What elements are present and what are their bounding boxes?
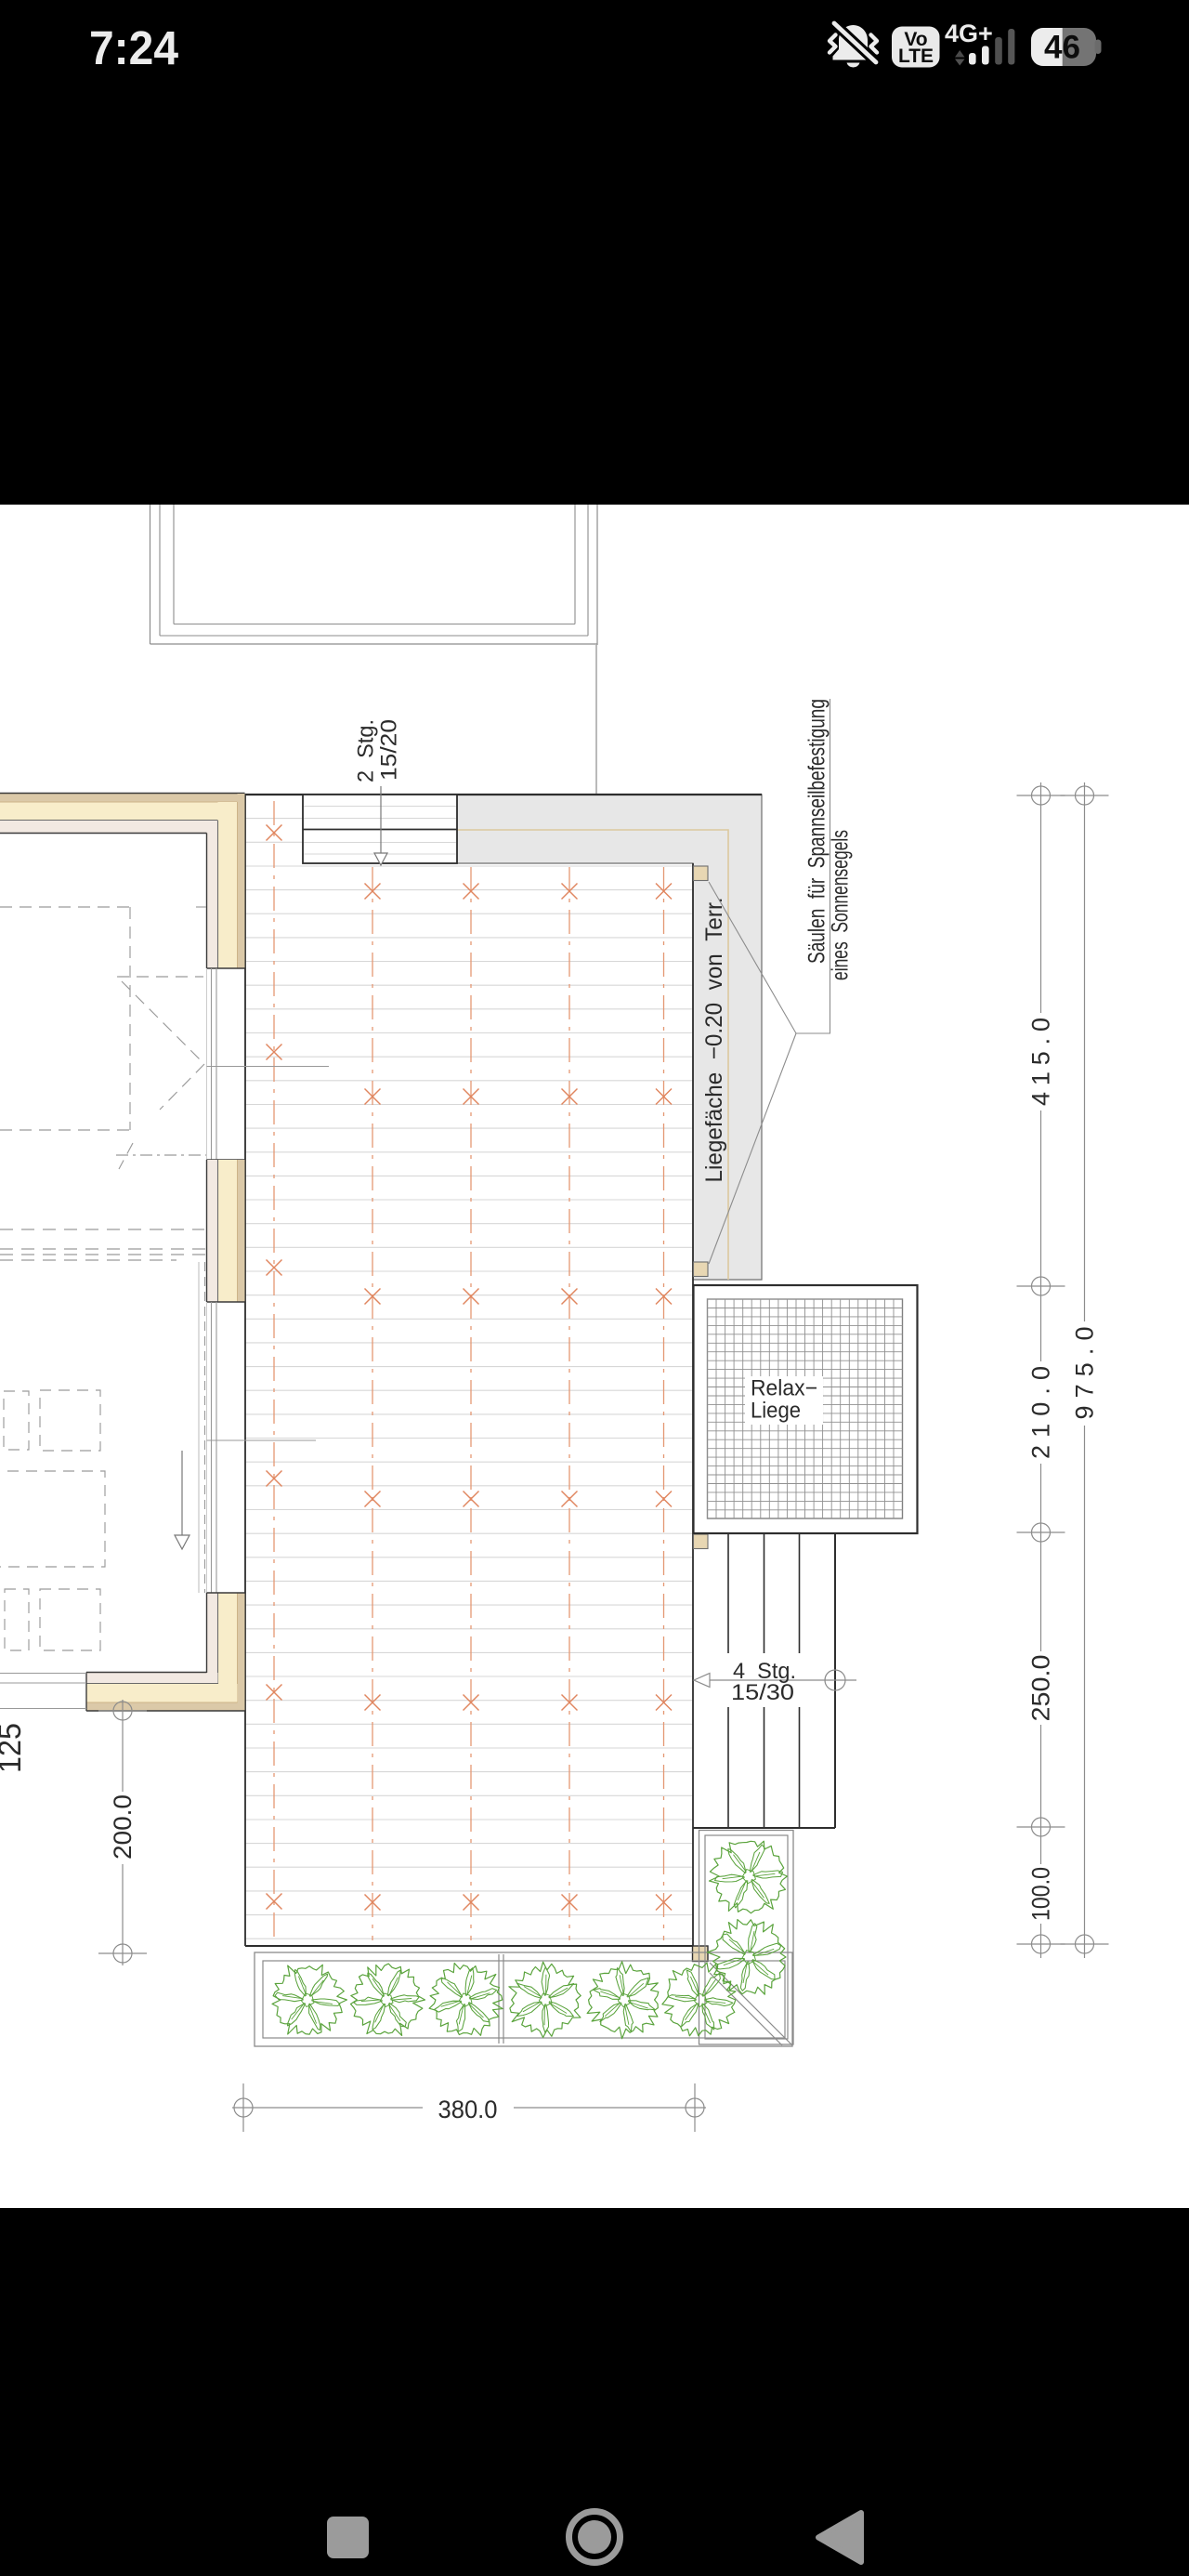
svg-text:15/30: 15/30 — [731, 1680, 794, 1705]
svg-text:975.0: 975.0 — [1071, 1327, 1099, 1420]
svg-text:210.0: 210.0 — [1027, 1366, 1055, 1459]
svg-text:100.0: 100.0 — [1027, 1867, 1055, 1921]
svg-text:Relax−: Relax− — [751, 1376, 817, 1401]
svg-text:Säulen für Spannseilbefestig: Säulen für Spannseilbefestigung — [804, 699, 830, 964]
svg-text:125: 125 — [0, 1723, 28, 1773]
svg-text:415.0: 415.0 — [1027, 1018, 1055, 1106]
svg-text:15/20: 15/20 — [377, 719, 402, 781]
svg-text:380.0: 380.0 — [438, 2096, 498, 2123]
svg-text:eines Sonnensegels: eines Sonnensegels — [828, 830, 854, 980]
svg-text:7:24: 7:24 — [89, 21, 179, 74]
svg-text:2 Stg.: 2 Stg. — [354, 719, 379, 782]
svg-text:Liegefäche −0.20 von Terr.: Liegefäche −0.20 von Terr. — [701, 898, 727, 1183]
svg-text:Liege: Liege — [751, 1399, 801, 1424]
svg-text:4G+: 4G+ — [945, 20, 993, 47]
svg-text:46: 46 — [1044, 30, 1080, 66]
svg-text:200.0: 200.0 — [109, 1794, 137, 1860]
svg-text:LTE: LTE — [898, 46, 934, 67]
svg-text:250.0: 250.0 — [1027, 1655, 1055, 1722]
